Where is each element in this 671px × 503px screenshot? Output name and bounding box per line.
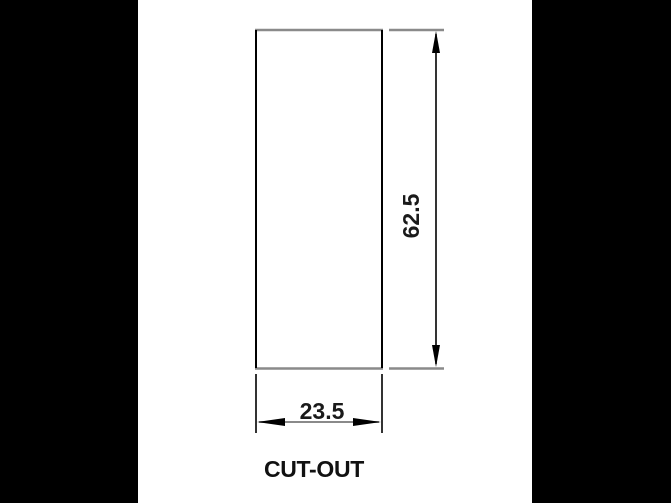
cutout-rectangle	[255, 30, 383, 369]
letterbox-right-bar	[532, 0, 671, 503]
drawing-label: CUT-OUT	[264, 456, 364, 482]
width-dimension: 23.5	[256, 374, 382, 433]
arrow-down-icon	[432, 345, 440, 367]
arrow-up-icon	[432, 31, 440, 53]
drawing-panel: 62.5 23.5 CUT-OUT	[138, 0, 532, 503]
height-dimension-value: 62.5	[398, 193, 424, 238]
letterbox-left-bar	[0, 0, 138, 503]
arrow-left-icon	[257, 418, 285, 426]
height-dimension: 62.5	[389, 30, 444, 369]
width-dimension-value: 23.5	[300, 398, 345, 424]
arrow-right-icon	[353, 418, 381, 426]
cutout-technical-drawing: 62.5 23.5 CUT-OUT	[138, 0, 532, 503]
screen: 62.5 23.5 CUT-OUT	[0, 0, 671, 503]
